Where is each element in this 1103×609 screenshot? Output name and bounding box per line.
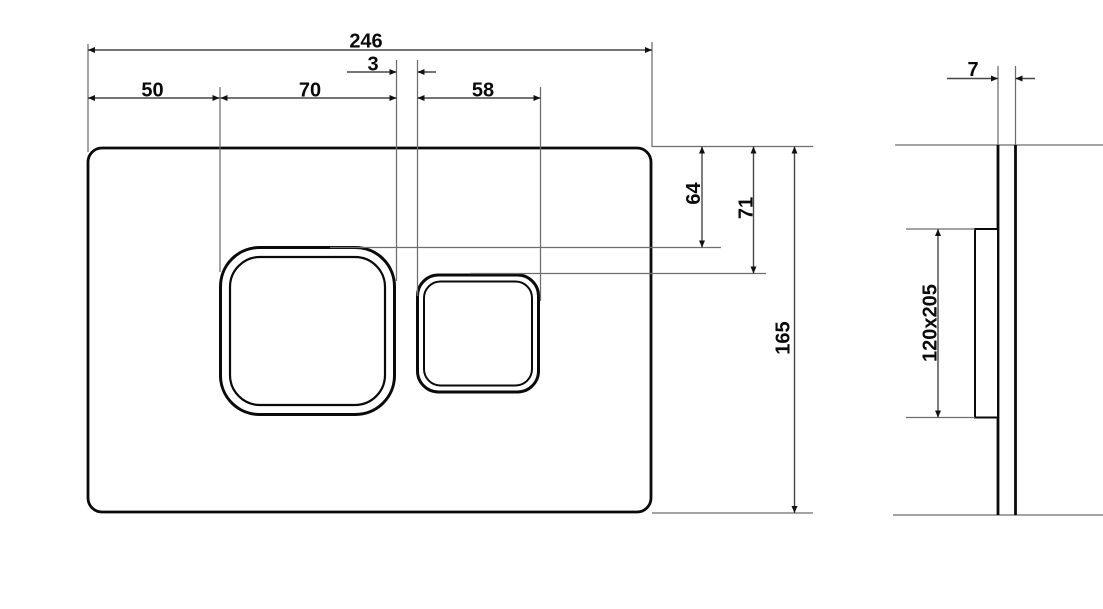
svg-text:71: 71 bbox=[736, 197, 758, 219]
svg-text:58: 58 bbox=[472, 80, 494, 102]
svg-text:70: 70 bbox=[299, 80, 321, 102]
svg-text:3: 3 bbox=[367, 54, 378, 76]
svg-text:120x205: 120x205 bbox=[920, 284, 942, 362]
svg-text:50: 50 bbox=[141, 80, 163, 102]
svg-text:246: 246 bbox=[349, 31, 382, 53]
svg-text:7: 7 bbox=[967, 59, 978, 81]
svg-text:64: 64 bbox=[683, 182, 705, 205]
svg-text:165: 165 bbox=[773, 321, 795, 354]
